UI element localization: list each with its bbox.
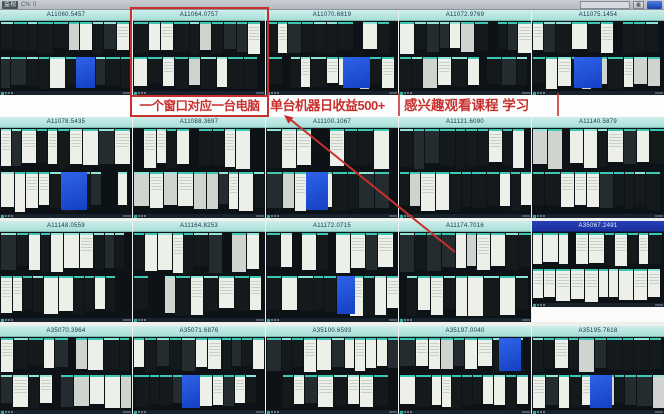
mini-window-content <box>2 281 11 297</box>
mini-window <box>400 172 409 206</box>
taskbar-item <box>8 411 10 413</box>
mini-window <box>267 338 281 371</box>
mini-window <box>29 375 39 409</box>
monitor-panel[interactable]: A35100.6593 <box>266 326 398 414</box>
mini-window <box>364 276 374 316</box>
mini-window <box>363 22 377 49</box>
mini-window-content <box>251 281 260 295</box>
mini-window <box>585 269 598 302</box>
taskbar-item <box>404 411 406 413</box>
mini-window-content <box>283 134 295 151</box>
mini-window <box>465 338 477 369</box>
mini-window <box>248 22 260 54</box>
mini-window <box>175 57 188 89</box>
mini-window <box>388 338 398 368</box>
panel-title: A11070.6819 <box>266 10 398 21</box>
mini-window-content <box>179 177 192 191</box>
mini-window <box>519 233 531 267</box>
mini-window <box>588 22 600 52</box>
mini-window <box>161 22 173 50</box>
mini-window <box>625 172 634 209</box>
taskbar-item <box>141 319 143 321</box>
mini-window <box>559 375 569 408</box>
taskbar-item <box>5 319 7 321</box>
mini-window-content <box>71 134 81 149</box>
mini-window <box>387 276 398 308</box>
mini-window <box>487 57 501 84</box>
mini-window <box>317 338 331 370</box>
mini-window <box>267 129 281 168</box>
mini-window <box>278 22 287 53</box>
mini-window <box>598 129 607 167</box>
desktop-patch <box>61 172 87 210</box>
mini-window <box>456 276 467 316</box>
taskbar-item <box>141 411 143 413</box>
mini-window <box>33 276 43 312</box>
mini-window <box>244 57 257 89</box>
mini-window <box>228 57 243 89</box>
taskbar-item <box>5 215 7 217</box>
mini-window <box>374 375 388 406</box>
mini-window <box>410 172 420 206</box>
taskbar-item <box>271 319 273 321</box>
mini-window <box>487 172 499 205</box>
mini-window <box>48 129 57 164</box>
mini-window <box>414 129 424 169</box>
monitor-panel[interactable]: A11140.5879 <box>532 117 664 218</box>
mini-window <box>282 276 297 310</box>
mini-window <box>281 233 292 267</box>
mini-window <box>494 375 505 405</box>
mini-window <box>209 233 222 273</box>
mini-window <box>462 375 472 405</box>
panel-screen <box>399 128 531 218</box>
taskbar-tray <box>256 92 264 94</box>
taskbar-item <box>537 92 539 94</box>
mini-window <box>217 57 227 87</box>
panel-title: A11078.5435 <box>0 117 132 128</box>
mini-window <box>648 57 660 86</box>
start-button-icon <box>134 319 137 322</box>
taskbar-item <box>11 92 13 94</box>
mini-window <box>400 22 414 54</box>
taskbar-item <box>144 92 146 94</box>
remote-taskbar <box>532 214 664 218</box>
mini-window <box>442 375 451 407</box>
mini-window <box>282 129 296 168</box>
mini-window <box>99 129 114 164</box>
mini-window-content <box>331 134 343 150</box>
taskbar-tray <box>389 92 397 94</box>
mini-window <box>415 233 426 270</box>
mini-window <box>302 233 316 270</box>
mini-window <box>425 129 439 163</box>
mini-window <box>650 338 661 369</box>
mini-window <box>267 233 280 266</box>
mini-window-content <box>379 238 392 252</box>
mini-window <box>570 129 583 163</box>
remote-taskbar <box>532 91 664 95</box>
mini-window <box>250 276 261 310</box>
taskbar-tray <box>655 215 663 217</box>
mini-window-content <box>226 134 234 150</box>
mini-window-content <box>559 62 570 74</box>
mini-window <box>247 233 259 269</box>
mini-window <box>121 375 131 408</box>
monitor-panel[interactable]: A11172.0715 <box>266 221 398 322</box>
mini-window <box>324 276 336 312</box>
taskbar-item <box>543 304 545 306</box>
mini-window <box>232 338 241 366</box>
monitor-panel[interactable]: A35070.3964 <box>0 326 132 414</box>
mini-window <box>160 375 172 405</box>
taskbar-item <box>274 319 276 321</box>
mini-window <box>144 129 156 168</box>
mini-window <box>452 57 467 87</box>
start-button-icon <box>400 215 403 218</box>
mini-window <box>483 375 493 404</box>
mini-window <box>150 375 159 404</box>
mini-window <box>288 22 301 53</box>
mini-window <box>232 233 246 272</box>
mini-window <box>330 129 344 166</box>
mini-window-content <box>174 238 182 255</box>
mini-window <box>628 233 638 263</box>
mini-window <box>38 22 53 54</box>
start-button-icon <box>533 92 536 95</box>
mini-window <box>74 375 89 406</box>
mini-window-content <box>116 134 129 149</box>
mini-window-content <box>422 177 434 194</box>
mini-window-content <box>81 238 92 253</box>
start-button-icon <box>533 304 536 307</box>
mini-window <box>489 129 502 162</box>
mini-window <box>360 375 373 407</box>
mini-window <box>521 172 531 205</box>
mini-window <box>235 375 245 403</box>
mini-window <box>468 276 483 316</box>
mini-window <box>569 338 578 369</box>
taskbar-item <box>274 411 276 413</box>
desktop-patch <box>590 375 612 408</box>
monitor-panel[interactable]: A11064.0757 <box>133 10 265 95</box>
mini-window <box>607 338 622 370</box>
mini-window <box>27 57 38 86</box>
remote-taskbar <box>133 410 265 414</box>
mini-window <box>170 338 181 369</box>
mini-window <box>634 338 649 370</box>
mini-window <box>608 57 623 89</box>
start-button-icon <box>1 319 4 322</box>
mini-window <box>12 129 21 166</box>
mini-window <box>242 338 252 366</box>
taskbar-item <box>271 92 273 94</box>
mini-window <box>462 172 471 207</box>
taskbar-item <box>271 411 273 413</box>
mini-window-content <box>164 62 173 74</box>
mini-window <box>157 338 169 366</box>
mini-window <box>575 172 586 205</box>
mini-window-content <box>562 177 573 192</box>
mini-window <box>646 22 658 52</box>
taskbar-item <box>540 304 542 306</box>
taskbar-tray <box>522 215 530 217</box>
mini-window <box>511 172 520 211</box>
mini-window <box>478 129 488 165</box>
mini-window <box>600 172 613 208</box>
mini-window-content <box>162 27 172 39</box>
mini-window-content <box>388 281 398 295</box>
mini-window <box>436 172 449 210</box>
monitor-panel[interactable]: A35197.0040 <box>399 326 531 414</box>
panel-screen <box>532 232 664 307</box>
mini-window <box>634 22 645 53</box>
mini-window <box>14 338 28 369</box>
panel-title: A35071.6876 <box>133 326 265 337</box>
mini-window-content <box>625 62 632 75</box>
monitor-panel[interactable]: A11148.0559 <box>0 221 132 322</box>
start-button-icon <box>267 215 270 218</box>
mini-window <box>558 57 571 86</box>
mini-window-content <box>361 380 372 394</box>
mini-window-content <box>298 134 310 149</box>
panel-title: A35197.0040 <box>399 326 531 337</box>
mini-window-content <box>356 343 364 357</box>
mini-window <box>134 338 144 367</box>
mini-window <box>134 57 147 86</box>
mini-window <box>134 375 149 407</box>
mini-window-content <box>430 343 439 356</box>
mini-window <box>301 57 310 87</box>
monitor-panel[interactable]: A11174.7016 <box>399 221 531 322</box>
mini-window <box>637 375 652 406</box>
mini-window <box>544 338 554 368</box>
mini-window <box>267 22 277 51</box>
mini-window <box>207 172 218 209</box>
mini-window <box>297 129 311 165</box>
mini-window <box>191 276 203 315</box>
mini-window <box>213 129 224 165</box>
panel-screen <box>532 21 664 95</box>
mini-window <box>93 22 103 54</box>
mini-window-content <box>27 177 37 192</box>
mini-window <box>375 172 389 208</box>
mini-window <box>421 172 435 211</box>
panel-screen <box>266 21 398 95</box>
panel-title: A11100.1067 <box>266 117 398 128</box>
mini-window-content <box>439 62 450 74</box>
taskbar-tray <box>256 411 264 413</box>
mini-window <box>450 172 461 212</box>
taskbar-item <box>404 215 406 217</box>
monitor-panel[interactable]: A11060.5457 <box>0 10 132 95</box>
mini-window <box>117 22 129 50</box>
mini-window <box>508 22 517 50</box>
taskbar-item <box>138 319 140 321</box>
taskbar-tray <box>522 92 530 94</box>
mini-window <box>1 276 12 313</box>
mini-window <box>366 338 376 368</box>
mini-window <box>635 172 645 207</box>
mini-window-content <box>576 177 585 191</box>
mini-window <box>450 22 460 48</box>
start-button-icon <box>1 215 4 218</box>
monitor-panel[interactable]: A11121.6090 <box>399 117 531 218</box>
mini-window <box>556 269 570 301</box>
mini-window-content <box>328 62 337 73</box>
mini-window <box>378 233 393 267</box>
desktop-patch <box>574 57 602 88</box>
mini-window <box>416 338 428 366</box>
start-button-icon <box>1 92 4 95</box>
mini-window <box>37 129 47 163</box>
mini-window <box>375 276 386 315</box>
mini-window <box>506 375 516 409</box>
monitor-panel[interactable]: A35067.2491 <box>532 221 664 322</box>
mini-window <box>201 57 216 89</box>
taskbar-tray <box>389 319 397 321</box>
remote-taskbar <box>532 410 664 414</box>
monitor-wall-window: 监视 CN: 0 ▦ A11060.5457A11064.0757A11070.… <box>0 0 664 414</box>
mini-window-content <box>586 274 597 288</box>
mini-window <box>104 338 119 369</box>
panel-screen <box>0 128 132 218</box>
mini-window-content <box>383 62 393 75</box>
remote-taskbar <box>133 91 265 95</box>
mini-window-content <box>352 238 364 253</box>
mini-window <box>145 233 157 271</box>
mini-window <box>13 375 28 407</box>
panel-screen <box>399 232 531 322</box>
monitor-panel[interactable]: A11088.3697 <box>133 117 265 218</box>
mini-window <box>634 57 647 84</box>
mini-window <box>104 22 116 49</box>
taskbar-item <box>537 215 539 217</box>
mini-window <box>1 233 16 270</box>
mini-window <box>83 129 98 165</box>
mini-window <box>555 338 568 368</box>
taskbar-item <box>11 215 13 217</box>
mini-window <box>454 338 464 366</box>
mini-window <box>184 233 193 273</box>
mini-window <box>167 129 176 168</box>
mini-window <box>164 172 177 205</box>
mini-window <box>1 338 13 372</box>
mini-window <box>559 233 568 264</box>
taskbar-item <box>141 92 143 94</box>
mini-window <box>246 375 256 403</box>
mini-window <box>317 233 328 270</box>
mini-window <box>646 172 660 210</box>
mini-window <box>649 233 662 264</box>
mini-window <box>442 233 455 267</box>
mini-window <box>599 269 608 297</box>
mini-window <box>292 338 303 367</box>
mini-window <box>415 22 426 49</box>
mini-window <box>533 269 543 298</box>
taskbar-item <box>138 411 140 413</box>
monitor-panel[interactable]: A11100.1067 <box>266 117 398 218</box>
monitor-panel[interactable]: A35071.6876 <box>133 326 265 414</box>
panel-screen <box>532 128 664 218</box>
desktop-patch <box>343 57 370 88</box>
mini-window-content <box>295 380 303 392</box>
mini-window <box>311 57 326 87</box>
mini-window <box>625 375 636 405</box>
mini-window-content <box>296 177 305 194</box>
mini-window <box>95 276 105 309</box>
mini-window <box>294 375 304 404</box>
monitor-panel[interactable]: A35195.7618 <box>532 326 664 414</box>
mini-window <box>11 57 26 85</box>
mini-window <box>548 129 562 169</box>
taskbar-tray <box>123 92 131 94</box>
mini-window-content <box>577 238 587 251</box>
start-button-icon <box>533 215 536 218</box>
mini-window <box>314 276 323 310</box>
mini-window <box>546 375 558 405</box>
taskbar-item <box>8 92 10 94</box>
mini-window <box>452 375 461 409</box>
mini-window <box>595 338 606 368</box>
mini-window-content <box>616 238 626 252</box>
mini-window <box>178 172 193 206</box>
mini-window <box>418 276 430 310</box>
mini-window <box>648 269 660 297</box>
monitor-panel[interactable]: A11070.6819 <box>266 10 398 95</box>
monitor-grid: A11060.5457A11064.0757A11070.6819A11072.… <box>0 0 664 414</box>
mini-window <box>589 233 604 263</box>
mini-window <box>134 22 148 53</box>
panel-title: A11121.6090 <box>399 117 531 128</box>
start-button-icon <box>134 411 137 414</box>
mini-window <box>400 57 411 89</box>
remote-taskbar <box>0 410 132 414</box>
monitor-panel[interactable]: A11078.5435 <box>0 117 132 218</box>
mini-window <box>473 375 482 404</box>
mini-window <box>208 338 221 369</box>
mini-window <box>200 22 211 50</box>
panel-screen <box>399 21 531 95</box>
mini-window-content <box>249 27 259 41</box>
mini-window <box>543 233 558 262</box>
mini-window <box>295 172 306 211</box>
mini-window <box>500 276 515 315</box>
mini-window <box>13 276 22 311</box>
panel-screen <box>399 337 531 414</box>
start-button-icon <box>267 319 270 322</box>
mini-window-content <box>534 274 542 286</box>
monitor-panel[interactable]: A11164.8253 <box>133 221 265 322</box>
mini-window <box>601 22 613 53</box>
mini-window <box>484 276 499 316</box>
mini-window <box>94 233 104 269</box>
mini-window <box>134 276 148 309</box>
monitor-panel[interactable]: A11072.9769 <box>399 10 531 95</box>
taskbar-item <box>543 215 545 217</box>
mini-window <box>29 338 43 366</box>
panel-title: A35100.6593 <box>266 326 398 337</box>
monitor-panel[interactable]: A11075.1454 <box>532 10 664 95</box>
taskbar-item <box>274 215 276 217</box>
taskbar-item <box>407 92 409 94</box>
mini-window <box>199 129 212 165</box>
mini-window <box>478 338 492 366</box>
panel-screen <box>266 232 398 322</box>
mini-window <box>236 129 250 169</box>
mini-window <box>467 233 476 266</box>
desktop-patch <box>182 375 200 408</box>
